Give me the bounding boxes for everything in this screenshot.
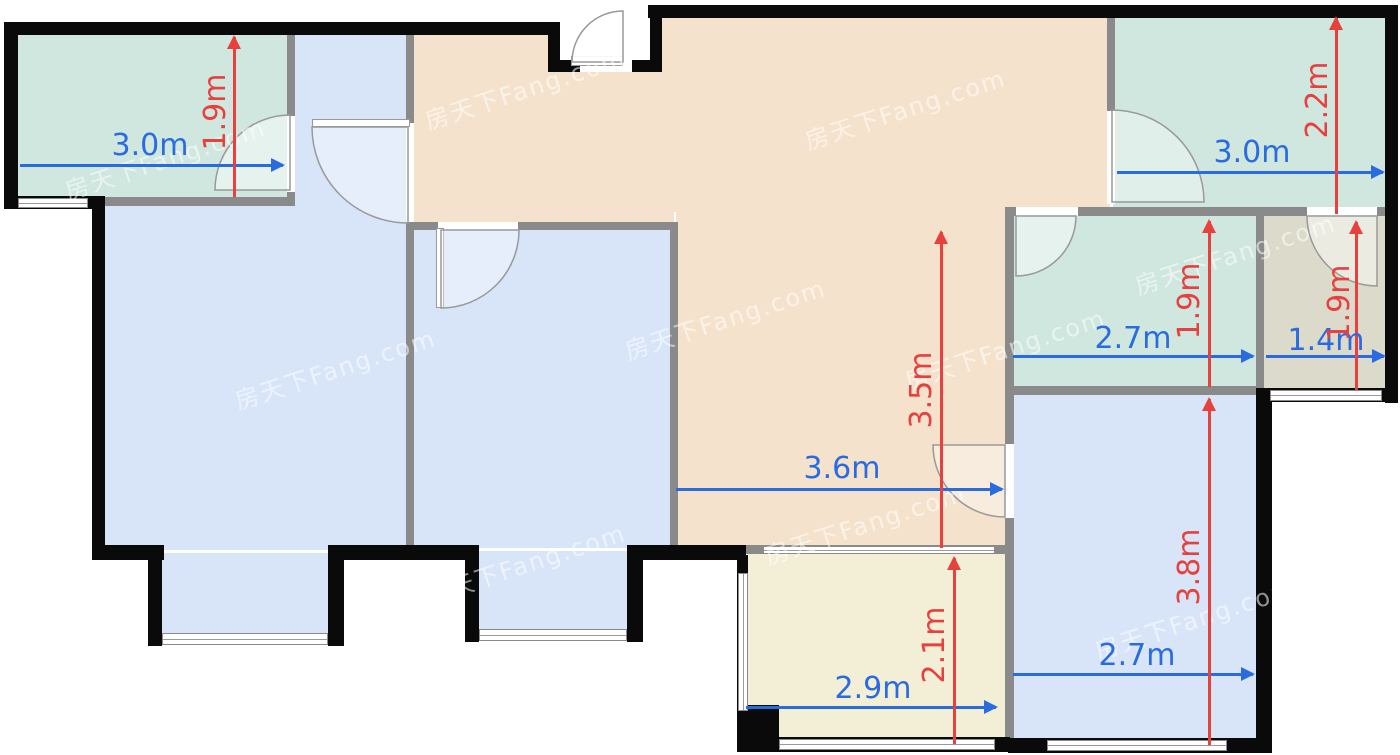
entrance-door-arc: [572, 11, 623, 62]
dim-label-bedroom-br-width: 2.7m: [1092, 639, 1182, 673]
door-opening: [1307, 207, 1377, 216]
wall: [92, 197, 293, 206]
wall: [4, 22, 560, 35]
wall: [406, 22, 414, 125]
arrowhead: [984, 700, 998, 714]
dim-label-living-height: 3.5m: [907, 340, 937, 440]
dim-arrow-living-height: [940, 232, 943, 548]
wall: [465, 545, 479, 642]
wall: [648, 5, 1398, 18]
arrowhead: [1202, 219, 1216, 233]
arrowhead: [227, 35, 241, 49]
dim-label-balcony-tl-height: 1.9m: [201, 62, 231, 162]
dim-label-bathroom-width: 2.7m: [1088, 322, 1178, 356]
wall: [1256, 212, 1264, 390]
wall: [406, 220, 414, 550]
window: [479, 629, 627, 641]
room-living-b: [650, 16, 1110, 212]
arrowhead: [1241, 349, 1255, 363]
dim-label-bedroom-tr-width: 3.0m: [1207, 136, 1297, 170]
dim-arrow-balcony-tl-width: [20, 164, 283, 167]
arrowhead: [990, 482, 1004, 496]
door-leaf: [312, 119, 410, 127]
door-arc: [441, 230, 519, 308]
wall: [650, 18, 662, 72]
window: [1047, 740, 1227, 751]
wall: [1107, 18, 1115, 113]
dim-label-bedroom-tr-height: 2.2m: [1303, 50, 1333, 150]
dim-arrow-bedroom-tr-height: [1335, 18, 1338, 214]
dim-arrow-bedroom-br-width: [1013, 673, 1253, 676]
dim-arrow-balcony-b-width: [746, 706, 996, 709]
arrowhead: [1371, 165, 1385, 179]
dim-label-bedroom-br-height: 3.8m: [1175, 517, 1205, 617]
dim-label-bathroom-height: 1.9m: [1175, 251, 1205, 351]
door-arc: [312, 127, 408, 223]
arrowhead: [1372, 349, 1386, 363]
window: [162, 633, 328, 645]
window: [779, 739, 995, 750]
room-bedroom-left: [103, 200, 408, 550]
room-bedroom-bottom-right: [1012, 393, 1258, 740]
floor-plan: 房天下Fang.com 房天下Fang.com 房天下Fang.com 房天下F…: [0, 0, 1400, 755]
wall: [287, 30, 295, 120]
room-bedroom-mid-bay: [479, 551, 627, 631]
arrowhead: [271, 158, 285, 172]
dim-arrow-balcony-tl-height: [233, 37, 236, 197]
arrowhead: [1329, 16, 1343, 30]
dim-arrow-living-width: [676, 488, 1002, 491]
dim-label-living-width: 3.6m: [797, 452, 887, 486]
room-bedroom-left-bay: [162, 553, 328, 635]
dim-label-balcony-b-height: 2.1m: [920, 595, 950, 695]
dim-arrow-bedroom-br-height: [1208, 399, 1211, 745]
dim-arrow-bedroom-tr-width: [1117, 171, 1383, 174]
dim-arrow-bathroom-height: [1208, 221, 1211, 387]
wall: [92, 196, 105, 560]
wall: [630, 545, 746, 560]
window: [738, 573, 748, 711]
arrowhead: [1202, 397, 1216, 411]
wall: [4, 22, 18, 208]
wall: [1256, 396, 1272, 752]
door-arc: [1112, 110, 1204, 202]
door-arc: [1016, 216, 1076, 276]
dim-arrow-balcony-b-height: [953, 558, 956, 744]
room-balcony-bottom: [747, 553, 1007, 739]
door-arc: [933, 445, 1005, 517]
window: [1270, 390, 1382, 401]
wall: [148, 545, 162, 646]
arrowhead: [934, 230, 948, 244]
arrowhead: [1241, 667, 1255, 681]
door-opening: [438, 222, 518, 230]
wall: [1005, 386, 1262, 395]
wall: [333, 545, 479, 560]
window: [18, 198, 88, 208]
wall: [670, 230, 678, 547]
wall: [1385, 5, 1398, 403]
dim-label-storage-height: 1.9m: [1325, 253, 1355, 353]
dim-label-balcony-b-width: 2.9m: [828, 672, 918, 706]
door-opening: [1005, 444, 1014, 518]
door-opening: [1016, 207, 1078, 216]
dim-label-balcony-tl-width: 3.0m: [105, 129, 195, 163]
window-slider-balcony: [763, 546, 995, 554]
wall: [328, 545, 344, 646]
arrowhead: [947, 556, 961, 570]
arrowhead: [1349, 220, 1363, 234]
